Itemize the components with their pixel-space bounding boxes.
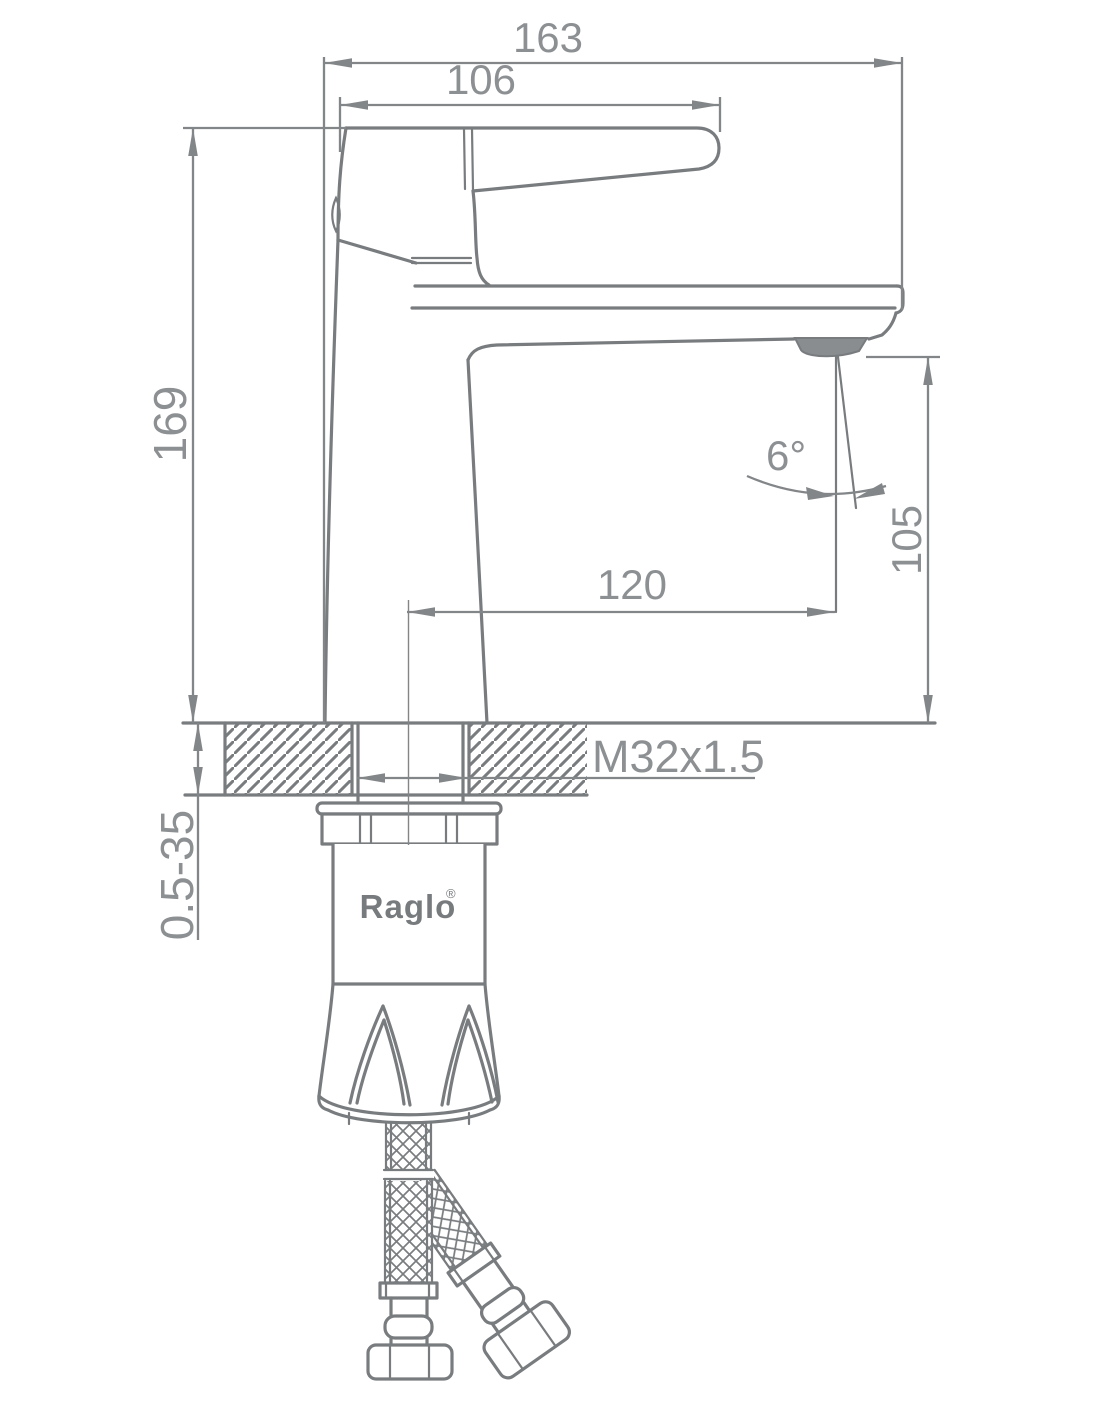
dimension-spray-angle: 6° bbox=[747, 432, 886, 500]
handle-neck-front bbox=[473, 191, 489, 285]
aerator bbox=[795, 338, 867, 356]
brand-registered-mark: ® bbox=[446, 886, 456, 901]
spout-reach-value: 120 bbox=[597, 561, 667, 608]
bulge bbox=[385, 1316, 432, 1338]
spray-angle-value: 6° bbox=[766, 432, 806, 479]
deck-hatch-left bbox=[225, 723, 352, 795]
dimension-overall-height: 169 bbox=[144, 128, 346, 723]
hex-nut bbox=[368, 1345, 452, 1379]
spout-corner bbox=[869, 313, 896, 339]
thread-spec-value: M32x1.5 bbox=[592, 731, 765, 782]
lever-top bbox=[346, 128, 719, 191]
braid2-pattern bbox=[385, 1181, 433, 1283]
column-left-edge bbox=[325, 240, 338, 723]
deck-hatch-right bbox=[470, 723, 587, 795]
lever-seam bbox=[464, 129, 473, 190]
stream-angled-line bbox=[838, 357, 856, 508]
faucet-body bbox=[325, 128, 903, 723]
deck-thickness-value: 0.5-35 bbox=[151, 810, 203, 940]
skirt-left-edge bbox=[319, 984, 333, 1096]
threaded-shank bbox=[352, 723, 469, 803]
spout-underside bbox=[468, 339, 794, 360]
ext-lines-163 bbox=[324, 57, 902, 723]
dimension-overall-width: 163 bbox=[324, 14, 902, 723]
base-skirt bbox=[319, 984, 499, 1124]
mounting-locknut bbox=[322, 814, 497, 844]
dimension-handle-width: 106 bbox=[340, 56, 720, 152]
spout bbox=[412, 286, 903, 360]
dimension-spout-reach: 120 bbox=[407, 561, 835, 612]
overall-height-value: 169 bbox=[144, 386, 196, 463]
pivot-ledge bbox=[412, 258, 471, 263]
handle-width-value: 106 bbox=[446, 56, 516, 103]
overall-width-value: 163 bbox=[513, 14, 583, 61]
spout-height-value: 105 bbox=[883, 505, 930, 575]
brand-label: Raglo ® bbox=[360, 886, 457, 925]
lever-handle bbox=[332, 128, 719, 285]
braid1-pattern bbox=[386, 1122, 431, 1170]
handle-shoulder bbox=[338, 240, 416, 263]
column-right-edge bbox=[468, 360, 487, 723]
dimension-spout-height: 105 bbox=[866, 357, 940, 723]
drawing-canvas: 163 106 169 0.5-35 120 105 6° M32x1.5 R bbox=[0, 0, 1114, 1404]
skirt-rim bbox=[328, 1110, 490, 1123]
skirt-petal-left bbox=[350, 1006, 410, 1105]
mounting-deck-section bbox=[183, 723, 935, 803]
brand-name: Raglo bbox=[360, 888, 457, 925]
faucet-dimension-drawing: 163 106 169 0.5-35 120 105 6° M32x1.5 R bbox=[0, 0, 1114, 1404]
dimension-deck-thickness: 0.5-35 bbox=[151, 723, 203, 940]
